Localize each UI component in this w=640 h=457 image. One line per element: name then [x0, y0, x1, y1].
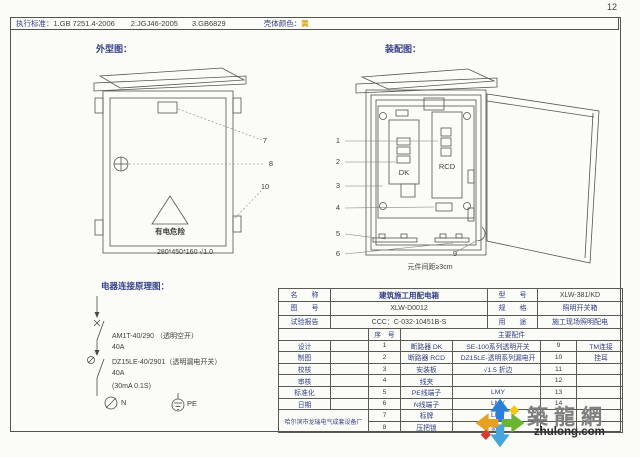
part-name: N线端子: [401, 398, 453, 410]
part-name2: [577, 363, 623, 375]
titleblock-field: 设计: [279, 340, 331, 352]
standards-bar: 执行标准： 1.GB 7251.4-2006 2.JGJ46-2005 3.GB…: [10, 17, 619, 30]
dk-label: DK: [389, 168, 419, 177]
table-row: 标准化 5 PE线端子 LMY 13: [279, 386, 623, 398]
part-no: 7: [369, 410, 401, 422]
outline-title: 外型图：: [96, 42, 132, 55]
callout-5: 5: [331, 229, 345, 238]
part-no2: 9: [541, 340, 577, 352]
standards-label: 执行标准：: [16, 18, 54, 29]
part-no2: 13: [541, 386, 577, 398]
part-no2: 12: [541, 375, 577, 387]
page-number: 12: [600, 2, 624, 12]
shell-color-value: 黄: [301, 18, 309, 29]
part-name: 标牌: [401, 410, 453, 422]
assembly-title: 装配图：: [385, 42, 421, 55]
warning-text: 有电危险: [148, 226, 192, 237]
info-table: 名 称 建筑施工用配电箱 型 号 XLW-381/KD 图 号 XLW-D001…: [278, 288, 623, 329]
rcd-label: RCD: [432, 162, 462, 171]
callout-10: 10: [258, 182, 272, 191]
part-no: 5: [369, 386, 401, 398]
callout-6: 6: [331, 249, 345, 258]
use-value: 施工现场照明配电: [538, 315, 623, 328]
callout-2: 2: [331, 157, 345, 166]
part-spec: DZ15LE-透明系列漏电开: [453, 352, 541, 364]
titleblock-field: 标准化: [279, 386, 331, 398]
spec-label: 规 格: [488, 302, 538, 315]
part-name: 断路器 RCD: [401, 352, 453, 364]
part-spec: SE-100系列透明开关: [453, 340, 541, 352]
callout-9: 9: [448, 249, 462, 258]
n-terminal-label: N: [121, 398, 126, 407]
part-name2: [577, 386, 623, 398]
zhulong-watermark-url: zhulong.com: [534, 426, 605, 438]
table-row: 制图 2 断路器 RCD DZ15LE-透明系列漏电开 10 挂耳: [279, 352, 623, 364]
parts-header: 主要配件: [401, 329, 623, 341]
part-no2: 11: [541, 363, 577, 375]
part-name: 压把锁: [401, 421, 453, 433]
callout-8: 8: [264, 159, 278, 168]
drawing-no-label: 图 号: [279, 302, 331, 315]
part-name2: 挂耳: [577, 352, 623, 364]
titleblock-field: 审核: [279, 375, 331, 387]
breaker2-spec: DZ15LE-40/2901（透明漏电开关）: [112, 357, 221, 367]
callout-1: 1: [331, 136, 345, 145]
schematic-title: 电器连接原理图：: [101, 280, 169, 292]
part-name2: [577, 375, 623, 387]
spec-value: 照明开关箱: [538, 302, 623, 315]
titleblock-field: 校核: [279, 363, 331, 375]
pe-terminal-label: PE: [187, 399, 197, 408]
use-label: 用 途: [488, 315, 538, 328]
model-value: XLW-381/KD: [538, 289, 623, 302]
breaker2-sensitivity: (30mA 0.1S): [112, 383, 151, 390]
callout-7: 7: [258, 136, 272, 145]
callout-4: 4: [331, 203, 345, 212]
part-name: 断路器 DK: [401, 340, 453, 352]
part-name: 安装板: [401, 363, 453, 375]
breaker1-spec: AM1T-40/290 （透明空开）: [112, 331, 198, 341]
callout-3: 3: [331, 181, 345, 190]
shell-color-label: 壳体颜色：: [264, 18, 302, 29]
part-no: 4: [369, 375, 401, 387]
drawing-no-value: XLW-D0012: [331, 302, 488, 315]
titleblock-field: 日期: [279, 398, 331, 410]
breaker2-rating: 40A: [112, 370, 124, 377]
part-no: 3: [369, 363, 401, 375]
part-no: 1: [369, 340, 401, 352]
seq-header: 序 号: [369, 329, 401, 341]
standard-2: 2.JGJ46-2005: [131, 19, 178, 28]
part-spec: √1.5 折边: [453, 363, 541, 375]
table-row: 设计 1 断路器 DK SE-100系列透明开关 9 TM连接: [279, 340, 623, 352]
name-label: 名 称: [279, 289, 331, 302]
part-name2: TM连接: [577, 340, 623, 352]
titleblock-spacer: [279, 329, 369, 341]
factory-name: 哈尔滨市龙瑞电气成套设备厂: [279, 410, 369, 433]
part-name: 线夹: [401, 375, 453, 387]
report-label: 试验报告: [279, 315, 331, 328]
part-no: 6: [369, 398, 401, 410]
standard-3: 3.GB6829: [192, 19, 226, 28]
name-value: 建筑施工用配电箱: [331, 289, 488, 302]
zhulong-pinwheel-icon: [474, 396, 526, 450]
part-name: PE线端子: [401, 386, 453, 398]
breaker1-rating: 40A: [112, 344, 124, 351]
part-no: 2: [369, 352, 401, 364]
standard-1: 1.GB 7251.4-2006: [54, 19, 115, 28]
spacing-note: 元件间距≥3cm: [390, 262, 470, 272]
drawing-sheet: 12 执行标准： 1.GB 7251.4-2006 2.JGJ46-2005 3…: [0, 0, 640, 457]
part-no2: 10: [541, 352, 577, 364]
part-no: 8: [369, 421, 401, 433]
report-value: CCC：C-032-10451B-S: [331, 315, 488, 328]
dimension-text: 280*450*160 √1.0: [140, 249, 230, 256]
part-spec: [453, 375, 541, 387]
titleblock-field: 制图: [279, 352, 331, 364]
table-row: 审核 4 线夹 12: [279, 375, 623, 387]
model-label: 型 号: [488, 289, 538, 302]
table-row: 校核 3 安装板 √1.5 折边 11: [279, 363, 623, 375]
